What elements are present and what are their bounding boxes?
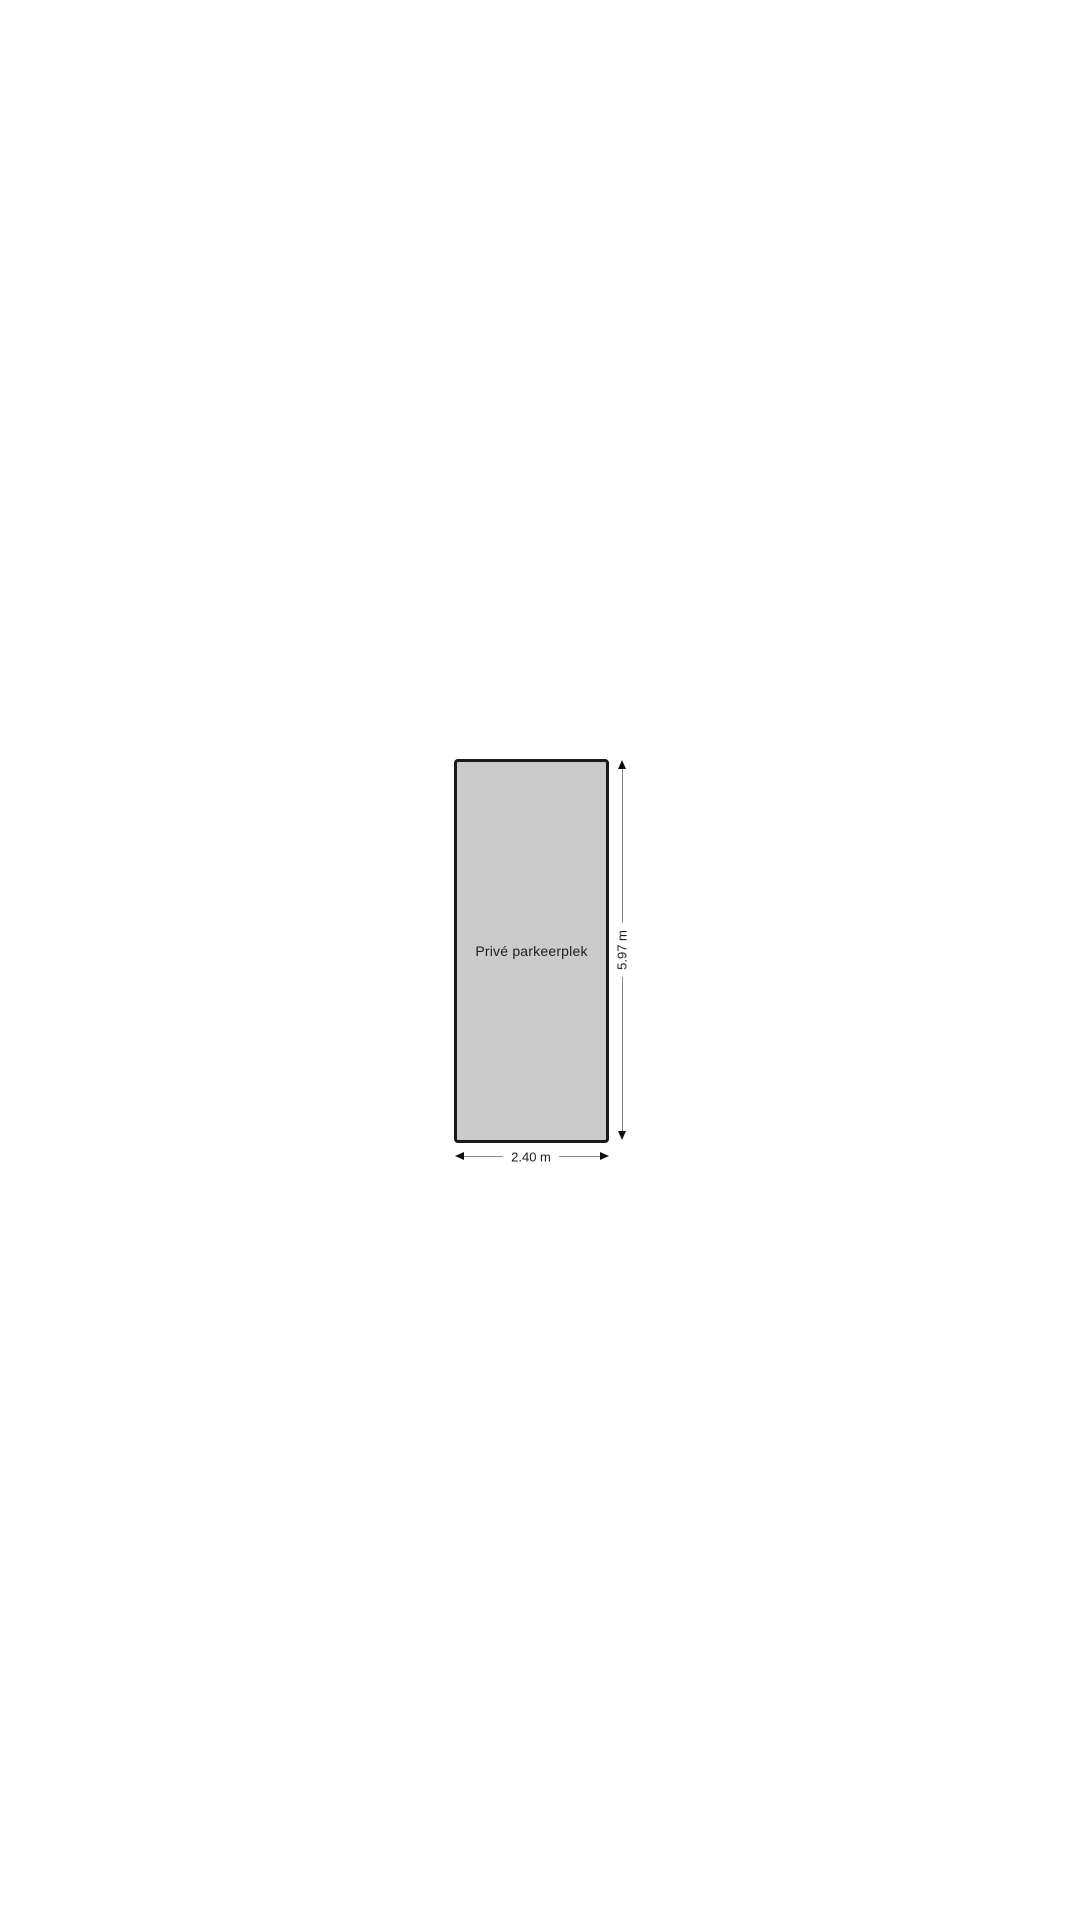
arrow-left-icon	[455, 1152, 464, 1160]
arrow-down-icon	[618, 1131, 626, 1140]
height-dimension-label: 5.97 m	[615, 923, 630, 977]
floorplan-canvas: Privé parkeerplek 5.97 m 2.40 m	[0, 0, 1080, 1920]
arrow-up-icon	[618, 760, 626, 769]
parking-space: Privé parkeerplek	[454, 759, 609, 1143]
arrow-right-icon	[600, 1152, 609, 1160]
width-dimension-label: 2.40 m	[503, 1150, 559, 1165]
parking-space-label: Privé parkeerplek	[475, 943, 587, 959]
